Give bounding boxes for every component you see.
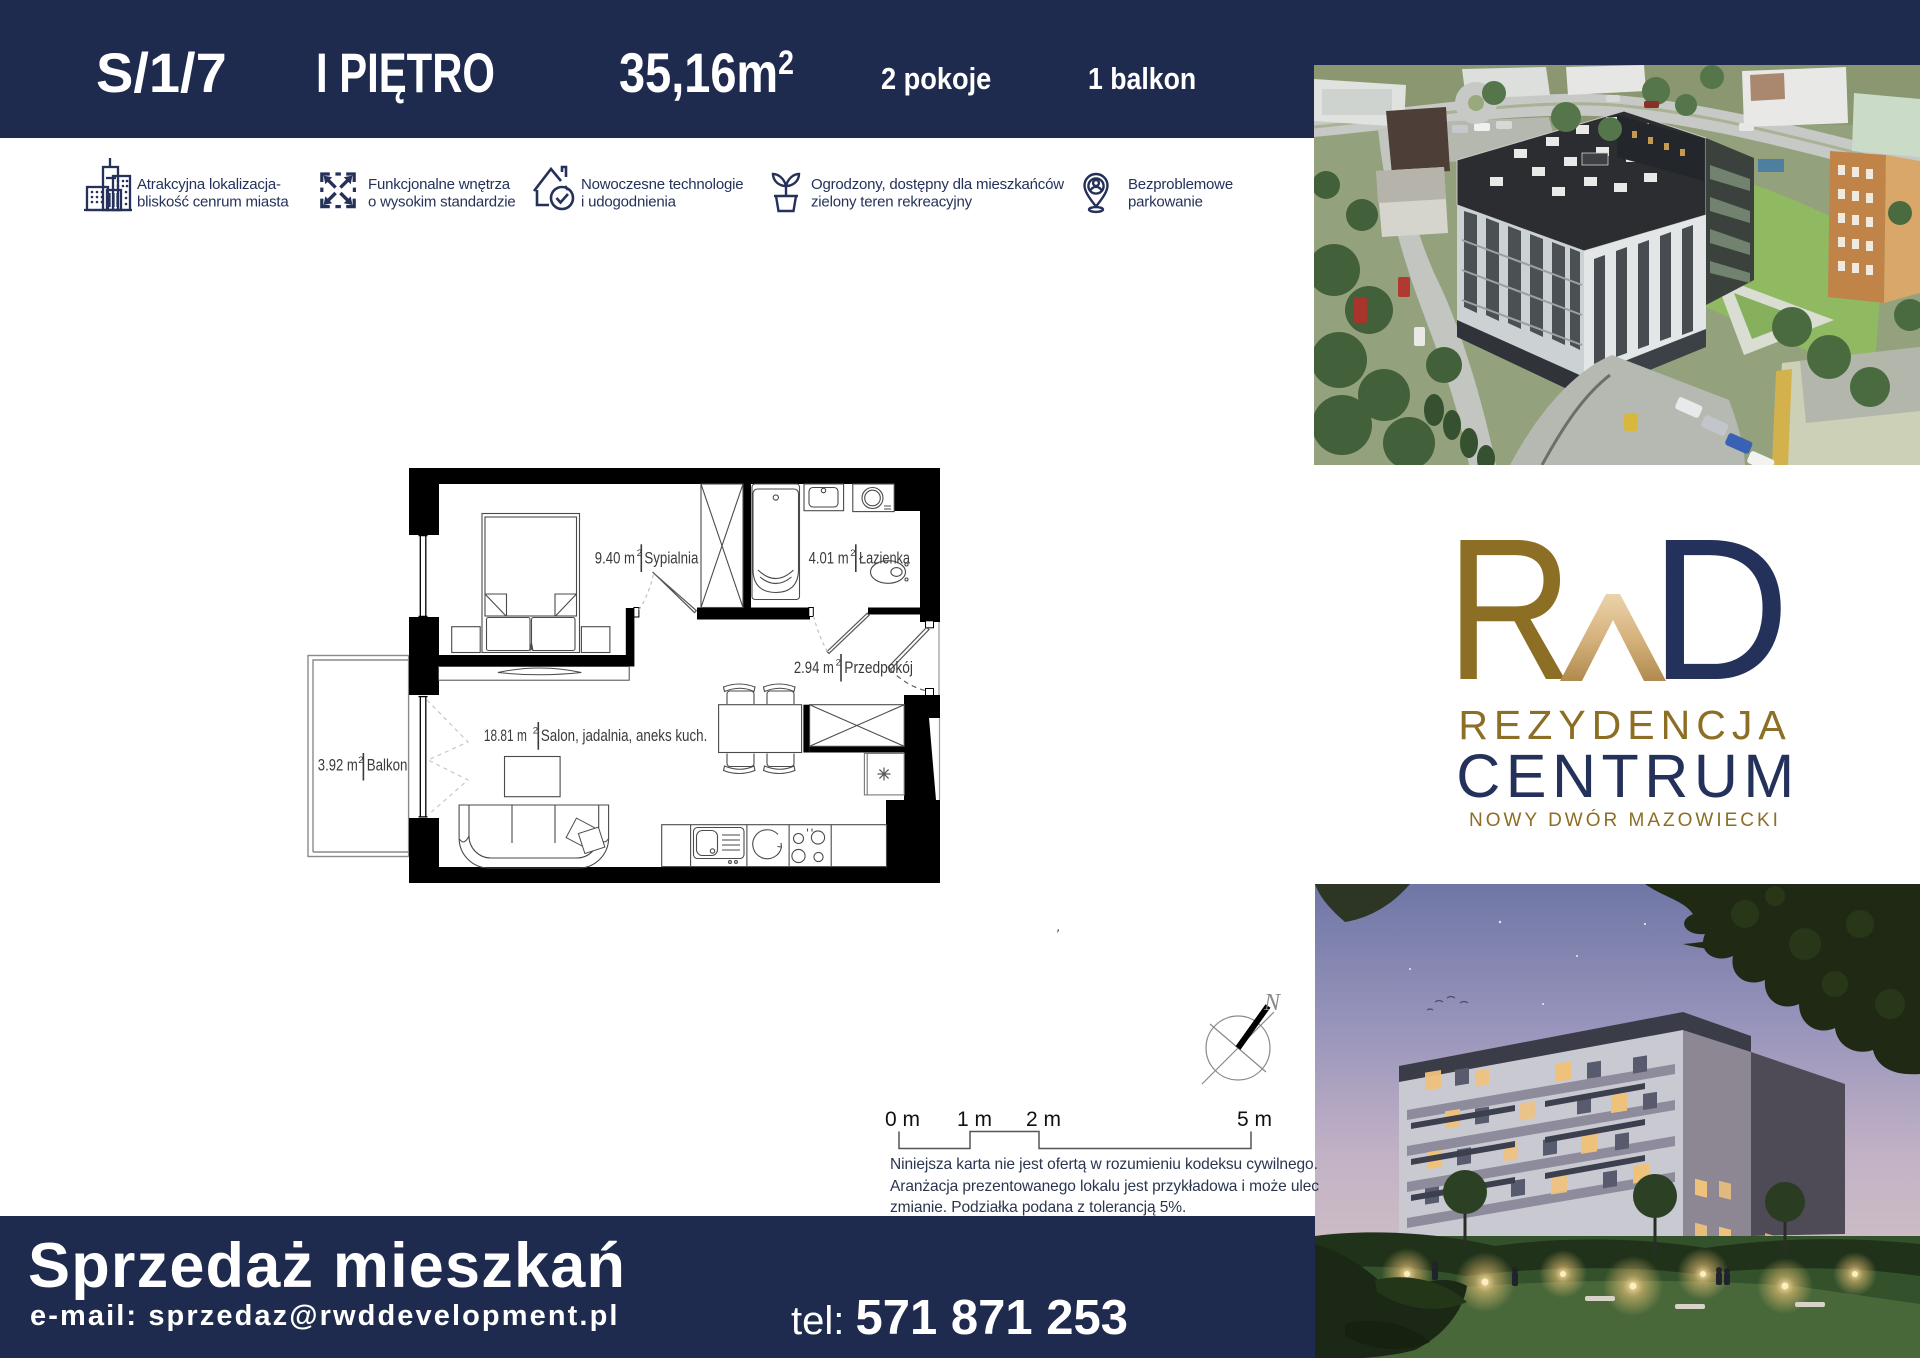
svg-text:Funkcjonalne wnętrza: Funkcjonalne wnętrza	[368, 176, 511, 193]
svg-text:Bezproblemowe: Bezproblemowe	[1128, 176, 1233, 193]
svg-text:o wysokim standardzie: o wysokim standardzie	[368, 194, 516, 211]
svg-text:Balkon: Balkon	[367, 756, 408, 775]
svg-text:Przedpokój: Przedpokój	[844, 658, 913, 677]
svg-text:NOWY DWÓR MAZOWIECKI: NOWY DWÓR MAZOWIECKI	[1469, 809, 1781, 831]
svg-text:2: 2	[850, 548, 855, 559]
svg-text:i udogodnienia: i udogodnienia	[581, 194, 677, 211]
svg-text:Atrakcyjna lokalizacja-: Atrakcyjna lokalizacja-	[137, 176, 281, 193]
svg-text:2: 2	[533, 726, 538, 737]
svg-text:2.94 m: 2.94 m	[794, 658, 834, 677]
svg-text:D: D	[1650, 500, 1790, 722]
svg-text:2 m: 2 m	[1026, 1108, 1061, 1131]
svg-text:5 m: 5 m	[1237, 1108, 1272, 1131]
svg-text:1 m: 1 m	[957, 1108, 992, 1131]
svg-text:R: R	[1446, 500, 1573, 722]
svg-text:N: N	[1263, 990, 1282, 1016]
svg-text:zielony teren rekreacyjny: zielony teren rekreacyjny	[811, 194, 973, 211]
svg-text:18.81 m: 18.81 m	[484, 726, 527, 745]
svg-text:Łazienka: Łazienka	[859, 548, 911, 567]
svg-text:9.40 m: 9.40 m	[595, 548, 635, 567]
svg-text:2: 2	[836, 658, 841, 669]
svg-text:Sypialnia: Sypialnia	[644, 548, 699, 567]
svg-text:3.92 m: 3.92 m	[318, 756, 358, 775]
svg-text:Nowoczesne technologie: Nowoczesne technologie	[581, 176, 743, 193]
svg-text:parkowanie: parkowanie	[1128, 194, 1203, 211]
svg-text:4.01 m: 4.01 m	[809, 548, 849, 567]
svg-text:CENTRUM: CENTRUM	[1456, 742, 1799, 810]
svg-text:Salon, jadalnia, aneks kuch.: Salon, jadalnia, aneks kuch.	[541, 726, 707, 745]
svg-text:bliskość cenrum miasta: bliskość cenrum miasta	[137, 194, 289, 211]
svg-text:0 m: 0 m	[885, 1108, 920, 1131]
svg-text:Ogrodzony, dostępny dla mieszk: Ogrodzony, dostępny dla mieszkańców	[811, 176, 1064, 193]
